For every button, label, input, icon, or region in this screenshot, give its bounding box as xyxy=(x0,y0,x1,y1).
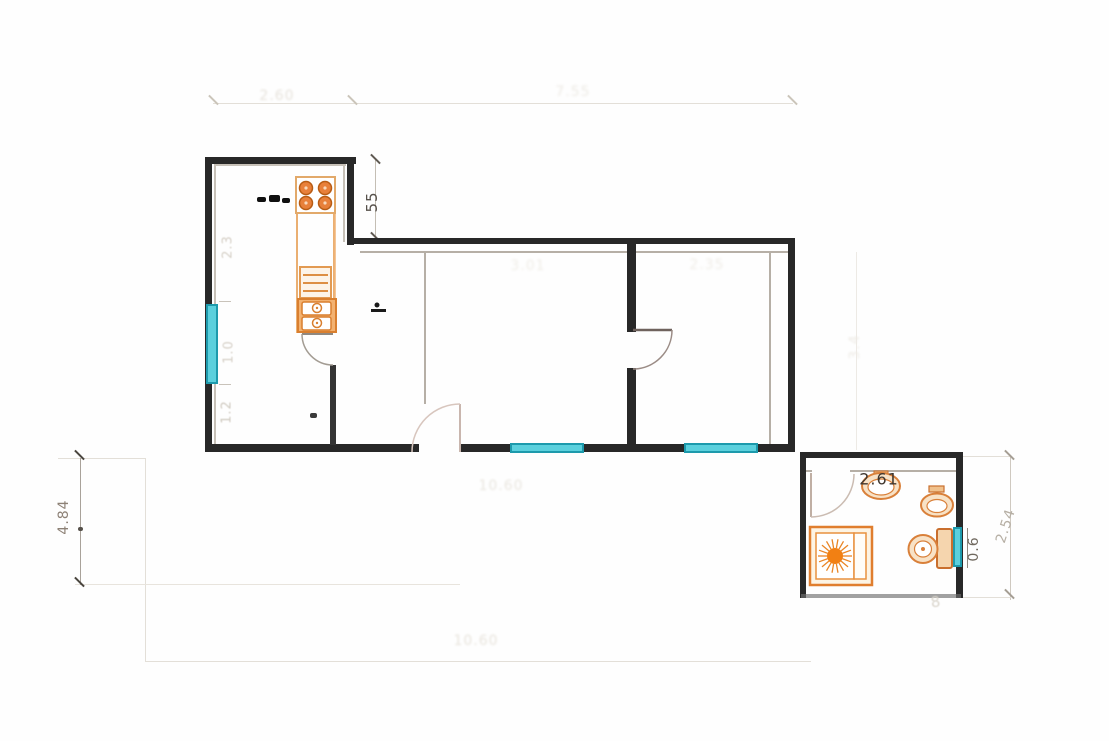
toilet-icon xyxy=(921,486,953,517)
kitchen-drawers-icon xyxy=(300,267,331,298)
dim-bath-window: 0.6 xyxy=(966,536,982,561)
dim-kitchen-entry-depth: 55 xyxy=(363,191,381,212)
dim-kitchen-seg-upper: 2.3 xyxy=(221,235,236,259)
dim-right-height: 3.4 xyxy=(847,334,863,359)
toilet-cistern-icon xyxy=(909,529,953,568)
dim-top-left-width: 2.60 xyxy=(259,88,294,104)
kitchen-door xyxy=(302,334,333,365)
bedroom-door xyxy=(633,330,672,369)
dim-kitchen-seg-lower: 1.2 xyxy=(220,400,235,424)
dim-bottom-width: 10.60 xyxy=(453,633,498,649)
dim-kitchen-seg-window: 1.0 xyxy=(222,340,237,364)
faucet-mark xyxy=(371,303,386,313)
entry-door xyxy=(412,404,460,452)
shower-icon xyxy=(810,527,872,585)
dim-living-width: 3.01 xyxy=(510,258,545,274)
stove-icon xyxy=(296,177,335,213)
bathroom-door xyxy=(811,473,854,517)
dim-bath-width: 2.61 xyxy=(859,470,899,489)
dim-hall-width: 10.60 xyxy=(478,478,523,494)
floor-plan: 2.60 7.55 55 2.3 1.0 1.2 4.84 3.01 2.35 … xyxy=(0,0,1109,741)
fixtures-layer xyxy=(0,0,1109,741)
kitchen-sink-icon xyxy=(298,299,336,332)
dim-left-height: 4.84 xyxy=(56,499,72,534)
dim-bedroom-width: 2.35 xyxy=(689,257,724,273)
dim-top-total-width: 7.55 xyxy=(555,84,590,100)
